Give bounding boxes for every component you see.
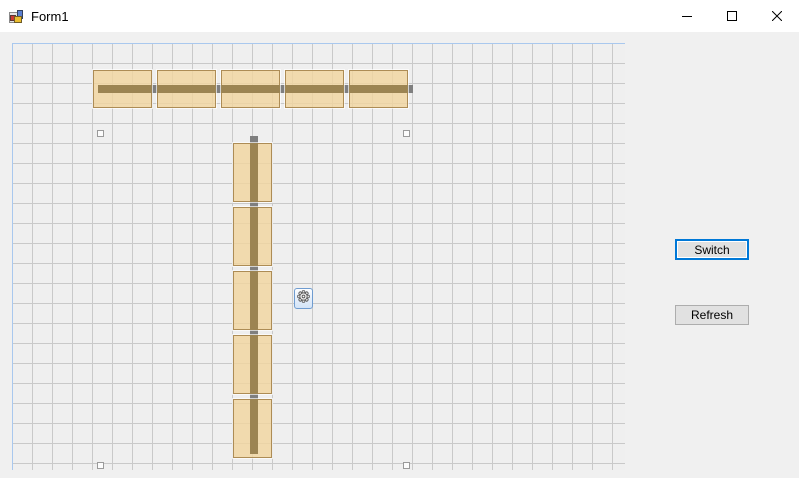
conveyor-vertical-module-4[interactable]	[233, 335, 272, 394]
minimize-icon	[682, 11, 692, 21]
anchor-handle-1[interactable]	[97, 130, 104, 137]
maximize-button[interactable]	[709, 0, 754, 32]
maximize-icon	[727, 11, 737, 21]
refresh-button[interactable]: Refresh	[675, 305, 749, 325]
minimize-button[interactable]	[664, 0, 709, 32]
anchor-handle-2[interactable]	[403, 130, 410, 137]
conveyor-horizontal-module-4[interactable]	[285, 70, 344, 108]
close-icon	[772, 11, 782, 21]
conveyor-horizontal-beam-segment-4	[285, 85, 344, 93]
gear-icon	[297, 290, 310, 308]
window-title: Form1	[31, 9, 69, 24]
conveyor-vertical-module-3[interactable]	[233, 271, 272, 330]
switch-button[interactable]: Switch	[675, 239, 749, 260]
conveyor-vertical-module-1[interactable]	[233, 143, 272, 202]
conveyor-vertical-beam-segment-3	[250, 271, 258, 330]
conveyor-vertical-module-5[interactable]	[233, 399, 272, 458]
app-icon-yellow-square	[14, 16, 22, 23]
conveyor-vertical-beam-segment-2	[250, 207, 258, 266]
conveyor-horizontal-beam-segment-1	[98, 85, 152, 93]
gear-widget-button[interactable]	[294, 288, 313, 309]
conveyor-vertical-beam-segment-4	[250, 335, 258, 394]
conveyor-vertical-beam-segment-1	[250, 143, 258, 202]
conveyor-horizontal-module-1[interactable]	[93, 70, 152, 108]
conveyor-horizontal-beam-segment-3	[221, 85, 280, 93]
conveyor-horizontal-module-2[interactable]	[157, 70, 216, 108]
anchor-handle-3[interactable]	[97, 462, 104, 469]
conveyor-vertical-module-2[interactable]	[233, 207, 272, 266]
designer-canvas[interactable]	[12, 43, 625, 470]
conveyor-horizontal-beam-segment-5	[349, 85, 408, 93]
conveyor-horizontal-module-3[interactable]	[221, 70, 280, 108]
close-button[interactable]	[754, 0, 799, 32]
conveyor-horizontal-beam-segment-2	[157, 85, 216, 93]
app-icon[interactable]	[9, 10, 23, 23]
window-controls	[664, 0, 799, 32]
conveyor-vertical-beam-segment-5	[250, 399, 258, 454]
titlebar[interactable]: Form1	[0, 0, 799, 32]
conveyor-horizontal-module-5[interactable]	[349, 70, 408, 108]
anchor-handle-4[interactable]	[403, 462, 410, 469]
